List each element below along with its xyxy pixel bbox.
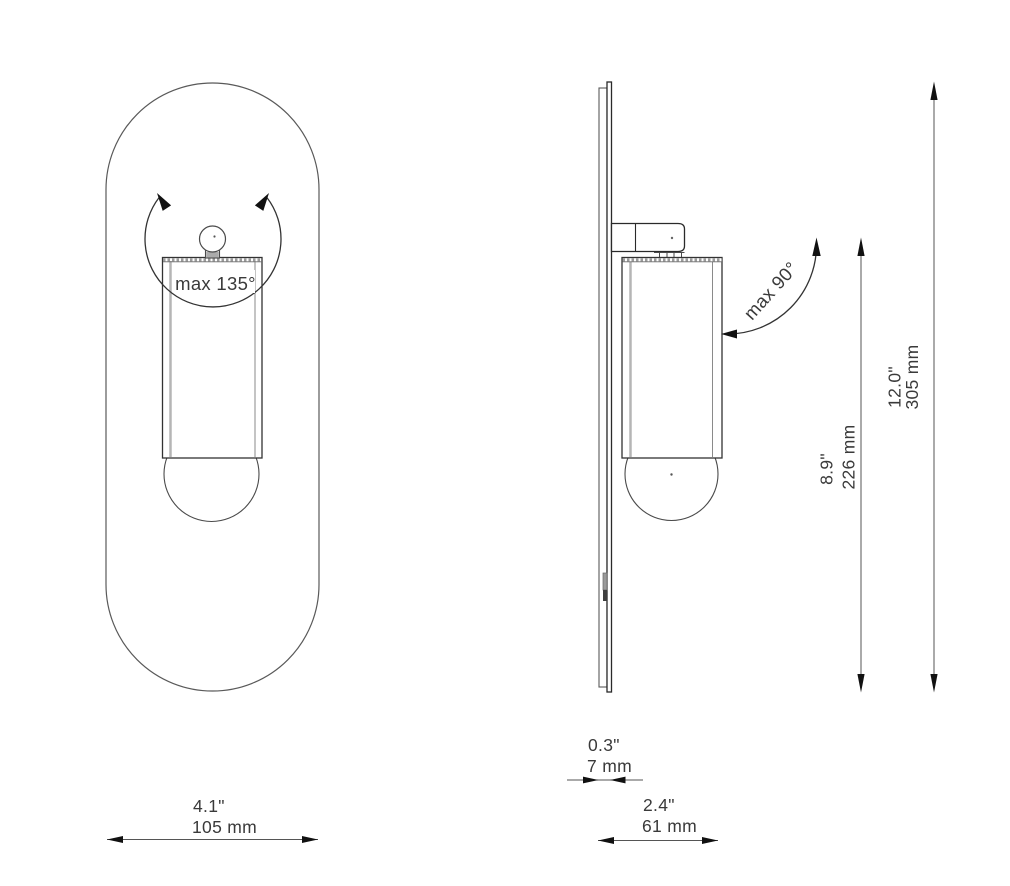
side-tilt-arrow-left-icon — [721, 330, 737, 339]
side-bulb-center-mark — [670, 473, 672, 475]
dim-total-depth-mm: 61 mm — [642, 816, 697, 836]
dim-plate-depth-inches: 0.3" — [588, 735, 620, 755]
dim-width-arrow-left-icon — [107, 836, 123, 843]
side-cable-slot-upper — [603, 573, 607, 590]
front-rotation-label: max 135° — [175, 273, 256, 294]
dim-plate-depth: 0.3" 7 mm — [567, 735, 643, 783]
side-hinge-foot-left — [660, 253, 668, 258]
side-arm-center-mark — [671, 237, 673, 239]
side-cylinder-body — [622, 258, 722, 459]
dim-total-depth-arrow-right-icon — [702, 837, 718, 844]
dim-total-depth: 2.4" 61 mm — [598, 795, 718, 844]
side-mounting-arm — [612, 224, 685, 252]
dim-plate-depth-arrow-left-icon — [610, 777, 626, 784]
dim-width-inches: 4.1" — [193, 796, 225, 816]
side-backplate-face — [607, 82, 612, 692]
dim-body-height-arrow-up-icon — [857, 238, 864, 257]
side-tilt-label: max 90° — [739, 258, 802, 324]
side-hinge-foot-right — [674, 253, 682, 258]
dim-total-height: 12.0" 305 mm — [885, 82, 938, 693]
dim-total-height-arrow-down-icon — [930, 674, 937, 693]
dim-total-depth-arrow-left-icon — [598, 837, 614, 844]
technical-drawing-canvas: max 135° max 90° — [0, 0, 1010, 886]
dim-body-height-arrow-down-icon — [857, 674, 864, 693]
dim-plate-depth-arrow-right-icon — [583, 777, 599, 784]
dim-body-height-mm: 226 mm — [839, 424, 859, 489]
dim-width: 4.1" 105 mm — [107, 796, 318, 843]
dim-body-height: 8.9" 226 mm — [817, 238, 865, 693]
front-pivot-stem-collar — [206, 252, 219, 258]
front-pivot-knob — [200, 226, 226, 252]
dim-total-depth-inches: 2.4" — [643, 795, 675, 815]
side-tilt-arrow-up-icon — [812, 238, 820, 257]
side-cable-slot-lower — [603, 590, 607, 601]
sconce-dimension-drawing: max 135° max 90° — [0, 0, 1010, 886]
side-view: max 90° — [599, 82, 821, 692]
dim-width-mm: 105 mm — [192, 817, 257, 837]
dim-plate-depth-mm: 7 mm — [587, 756, 632, 776]
dim-width-arrow-right-icon — [302, 836, 318, 843]
dim-body-height-inches: 8.9" — [817, 453, 837, 485]
front-view: max 135° — [106, 83, 319, 691]
front-pivot-center-mark — [213, 235, 215, 237]
dim-total-height-arrow-up-icon — [930, 82, 937, 101]
dim-total-height-mm: 305 mm — [902, 344, 922, 409]
